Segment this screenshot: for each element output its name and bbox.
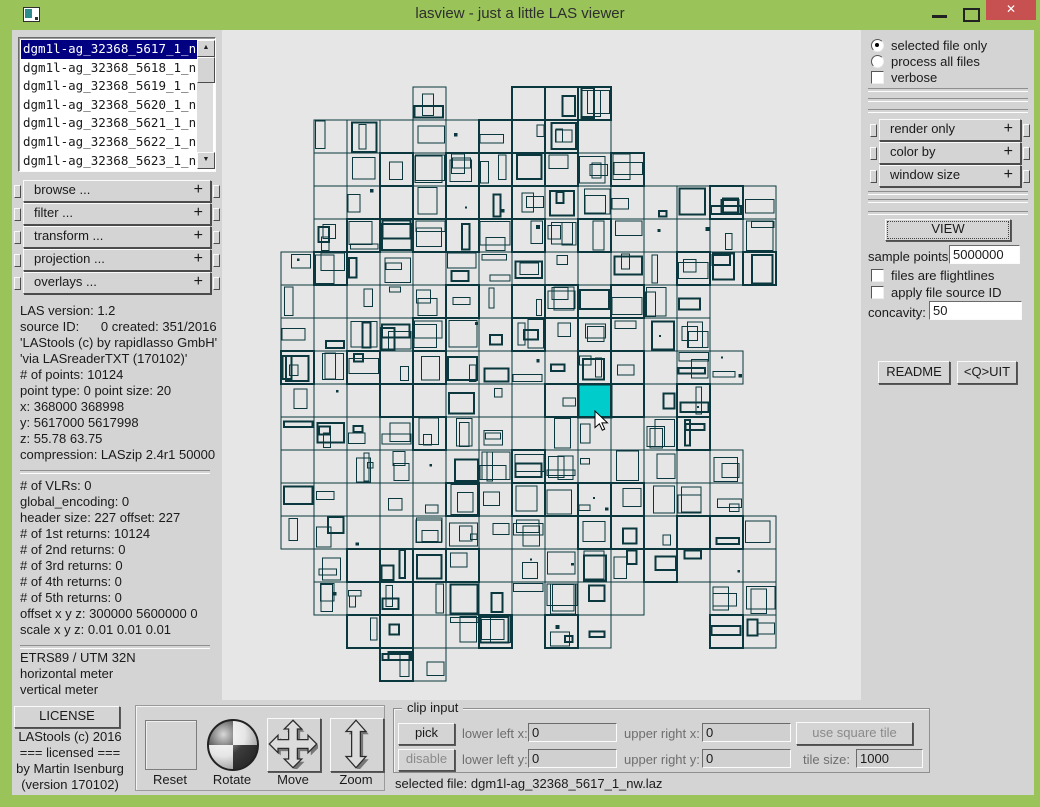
tile-inner-rect [348,433,365,443]
clip-input-legend: clip input [402,700,463,716]
map-tile [512,549,545,582]
tab-cap-left [14,208,21,221]
map-tile [314,384,347,417]
map-tile [611,483,644,516]
radio-selected-file-only[interactable]: selected file only [871,38,987,53]
map-tile [677,285,710,318]
map-tile [380,384,413,417]
tile-inner-rect [436,584,444,613]
maximize-button[interactable] [963,8,980,22]
tile-inner-rect [416,221,445,232]
checkbox-label: apply file source ID [891,285,1002,300]
pick-button[interactable]: pick [398,723,455,745]
tile-inner-rect [319,569,337,575]
tile-inner-rect [531,221,542,243]
tile-inner-rect [679,189,705,215]
tile-inner-rect [451,485,478,515]
tile-inner-rect [480,466,506,480]
tile-inner-rect [418,126,445,143]
tile-inner-rect [364,289,372,307]
map-tile [644,384,677,417]
map-tile [413,153,446,186]
menu-row: transform ...+ [14,226,220,248]
accordion-label: browse ... [24,182,90,197]
accordion-label: color by [880,144,936,159]
tile-inner-rect [558,456,573,479]
separator [20,470,210,474]
tab-cap-left [14,254,21,267]
tile-inner-rect [451,271,468,281]
tile-inner-rect [682,326,698,340]
reset-square-icon[interactable] [145,720,197,770]
tile-inner-rect [285,287,293,316]
map-tile [644,549,677,582]
minimize-button[interactable] [932,15,947,18]
credits: LAStools (c) 2016=== licensed ===by Mart… [12,729,128,793]
scroll-up-icon[interactable]: ▲ [197,40,215,57]
map-tile [479,516,512,549]
tile-inner-rect [713,594,737,606]
checkbox-verbose[interactable]: verbose [871,70,937,85]
tile-inner-rect [583,359,604,379]
map-tile [545,351,578,384]
map-tile [512,384,545,417]
tile-inner-rect [284,421,313,427]
tile-inner-rect [400,652,409,676]
tile-inner-rect [490,335,502,345]
tile-inner-rect [316,121,326,148]
tile-inner-rect [580,356,591,365]
view-tools-frame: Reset Rotate Move Zoom [135,705,385,791]
tile-dot [530,559,532,561]
tab-cap-right [1023,147,1030,160]
tile-inner-rect [548,456,564,477]
tile-dot [370,189,373,192]
tile-inner-rect [294,389,307,409]
map-tile [380,285,413,318]
separator [868,211,1028,215]
accordion-label: render only [880,121,955,136]
readme-button[interactable]: README [878,361,950,384]
map-tile [611,186,644,219]
map-tile [545,582,578,615]
tile-inner-rect [490,275,510,281]
map-tile [314,153,347,186]
tab-cap-right [213,208,220,221]
accordion-label: transform ... [24,228,103,243]
tile-inner-rect [485,369,509,382]
right-panel: selected file only process all files ver… [861,30,1034,700]
tile-inner-rect [415,155,444,180]
tile-map-canvas[interactable] [222,30,861,700]
view-button[interactable]: VIEW [885,219,1011,241]
tile-inner-rect [350,244,378,249]
tile-dot [697,406,699,408]
tile-dot [593,497,595,499]
map-tile [743,219,776,252]
option-color-by-button[interactable]: color by+ [879,142,1021,164]
map-tile [611,153,644,186]
tile-inner-rect [585,195,606,213]
tile-inner-rect [514,583,543,591]
tab-cap-left [14,185,21,198]
menu-filter-button[interactable]: filter ...+ [23,203,211,225]
crs-info: ETRS89 / UTM 32Nhorizontal metervertical… [20,650,218,698]
tile-dot [336,390,339,393]
map-tile [512,87,545,120]
lower-left-x-label: lower left x: [462,726,528,741]
separator [868,109,1028,113]
map-tile [413,648,446,681]
tab-cap-left [870,147,877,160]
disable-button[interactable]: disable [398,749,455,771]
tile-inner-rect [593,221,604,250]
las-header-line: 'LAStools (c) by rapidlasso GmbH' [20,335,218,351]
map-tile [512,351,545,384]
lower-left-x-input[interactable]: 0 [528,723,617,742]
tab-cap-left [14,277,21,290]
tile-size-label: tile size: [803,752,850,767]
scrollbar-thumb[interactable] [197,57,215,83]
map-tile [677,252,710,285]
tile-inner-rect [579,505,590,511]
separator [868,199,1028,203]
tile-inner-rect [562,222,576,245]
las-header-line: z: 55.78 63.75 [20,431,218,447]
map-tile [380,615,413,648]
tile-inner-rect [751,589,767,614]
tile-inner-rect [745,521,770,543]
map-tile [479,252,512,285]
left-panel: dgm1l-ag_32368_5617_1_ndgm1l-ag_32368_56… [12,30,222,700]
map-tile [545,516,578,549]
tile-dot [536,225,540,229]
menu-projection-button[interactable]: projection ...+ [23,249,211,271]
accordion-label: overlays ... [24,274,97,289]
map-tile [446,450,479,483]
tile-inner-rect [616,221,643,236]
upper-right-x-input[interactable]: 0 [702,723,791,742]
menu-browse-button[interactable]: browse ...+ [23,180,211,202]
file-list-scrollbar[interactable]: ▲ ▼ [197,40,213,169]
crs-line: ETRS89 / UTM 32N [20,650,218,666]
tile-inner-rect [449,393,474,413]
map-tile [314,549,347,582]
move-tool-label[interactable]: Move [267,772,319,787]
map-tile [743,186,776,219]
tile-inner-rect [494,388,502,396]
las-detail-line: # of 1st returns: 10124 [20,526,218,542]
tile-inner-rect [451,584,478,613]
tile-inner-rect [325,353,336,379]
quit-button[interactable]: <Q>UIT [957,361,1017,384]
checkbox-icon [871,286,884,299]
tile-inner-rect [627,551,637,564]
tile-inner-rect [352,158,375,179]
credit-line: LAStools (c) 2016 [12,729,128,745]
tile-inner-rect [289,519,298,541]
close-button[interactable]: ✕ [986,0,1036,20]
map-tile [545,252,578,285]
map-tile [545,417,578,450]
tile-dot [659,335,661,337]
tile-inner-rect [683,259,696,272]
map-tile [479,120,512,153]
menu-row: overlays ...+ [14,272,220,294]
map-tile [545,615,578,648]
map-tile [347,615,380,648]
tile-inner-rect [713,253,734,279]
tile-inner-rect [748,620,758,636]
map-tile [380,153,413,186]
map-tile [611,384,644,417]
file-list-item[interactable]: dgm1l-ag_32368_5620_1_n [21,96,197,115]
tile-inner-rect [680,403,708,412]
tile-inner-rect [555,130,571,142]
map-tile [611,285,644,318]
tile-inner-rect [713,371,735,377]
file-list-item[interactable]: dgm1l-ag_32368_5617_1_n [21,40,197,59]
file-list-item[interactable]: dgm1l-ag_32368_5622_1_n [21,133,197,152]
las-header-line: x: 368000 368998 [20,399,218,415]
map-tile [479,582,512,615]
sample-points-input[interactable]: 5000000 [949,245,1020,264]
tile-dot [454,133,458,137]
las-header-info: LAS version: 1.2source ID: 0 created: 35… [20,303,218,463]
map-tile [347,219,380,252]
map-tile [677,219,710,252]
map-tile [479,384,512,417]
upper-right-y-label: upper right y: [624,752,700,767]
upper-right-x-label: upper right x: [624,726,700,741]
tile-inner-rect [549,155,568,169]
tile-inner-rect [383,598,399,608]
map-tile [347,285,380,318]
tile-inner-rect [418,299,437,316]
tile-inner-rect [390,423,410,442]
tile-inner-rect [449,320,477,347]
tile-dot [738,374,741,377]
lower-left-y-label: lower left y: [462,752,528,767]
las-detail-line: # of VLRs: 0 [20,478,218,494]
tile-inner-rect [581,459,590,464]
tile-inner-rect [612,198,628,208]
tile-inner-rect [480,134,503,143]
concavity-input[interactable]: 50 [929,301,1022,320]
tile-inner-rect [588,326,604,341]
las-detail-info: # of VLRs: 0global_encoding: 0header siz… [20,478,218,638]
file-list-item[interactable]: dgm1l-ag_32368_5621_1_n [21,114,197,133]
tile-inner-rect [615,321,636,328]
map-tile [380,186,413,219]
tile-inner-rect [451,618,478,623]
tile-inner-rect [382,224,412,250]
file-list-item[interactable]: dgm1l-ag_32368_5618_1_n [21,59,197,78]
map-tile [314,252,347,285]
map-tile [578,219,611,252]
tile-inner-rect [587,90,609,113]
map-tile [479,285,512,318]
tile-inner-rect [415,156,442,183]
tile-inner-rect [751,221,774,227]
tile-inner-rect [494,194,501,216]
tile-inner-rect [563,398,575,406]
tile-inner-rect [417,555,442,579]
tile-inner-rect [386,263,402,270]
license-button[interactable]: LICENSE [14,706,120,728]
map-tile [611,351,644,384]
accordion-label: window size [880,167,960,182]
tile-inner-rect [316,255,335,284]
tile-inner-rect [752,255,772,283]
radio-label: selected file only [891,38,987,53]
file-list-item[interactable]: dgm1l-ag_32368_5619_1_n [21,77,197,96]
tile-inner-rect [557,255,568,264]
map-tile [743,549,776,582]
tile-inner-rect [394,463,409,480]
tile-inner-rect [462,224,470,249]
tile-inner-rect [557,192,564,203]
map-tile [347,582,380,615]
tile-inner-rect [686,424,705,430]
map-tile [644,318,677,351]
tile-inner-rect [522,562,537,578]
file-list-item[interactable]: dgm1l-ag_32368_5623_1_n [21,152,197,169]
tile-inner-rect [371,618,377,640]
tile-inner-rect [547,584,577,606]
map-tile [644,351,677,384]
tile-inner-rect [388,499,401,511]
tile-inner-rect [623,529,636,544]
rotate-tool-label[interactable]: Rotate [196,772,268,787]
zoom-tool-label[interactable]: Zoom [330,772,382,787]
tile-dot [657,229,660,232]
tile-inner-rect [583,521,605,541]
map-tile [545,153,578,186]
map-tile [677,516,710,549]
accordion-label: filter ... [24,205,73,220]
radio-process-all-files[interactable]: process all files [871,54,980,69]
move-tool-button[interactable] [267,718,321,772]
tile-dot [333,592,336,595]
expand-plus-icon: + [1004,120,1013,138]
tile-inner-rect [382,434,411,444]
las-detail-line: scale x y z: 0.01 0.01 0.01 [20,622,218,638]
map-tile [446,516,479,549]
file-listbox[interactable]: dgm1l-ag_32368_5617_1_ndgm1l-ag_32368_56… [18,37,216,172]
tile-inner-rect [612,298,642,315]
tile-inner-rect [528,320,544,348]
las-detail-line: # of 3rd returns: 0 [20,558,218,574]
tile-inner-rect [318,227,329,242]
tile-inner-rect [422,531,438,542]
upper-right-y-input[interactable]: 0 [702,749,791,768]
rotate-trackball-icon[interactable] [207,719,259,771]
map-tile [446,186,479,219]
map-tile [578,450,611,483]
checkbox-files-are-flightlines[interactable]: files are flightlines [871,268,994,283]
use-square-tile-button[interactable]: use square tile [796,722,913,745]
map-tile [347,252,380,285]
tile-inner-rect [282,328,305,340]
map-tile [578,582,611,615]
tile-inner-rect [487,452,493,481]
reset-tool-label[interactable]: Reset [136,772,204,787]
tile-dot [429,464,431,466]
tile-inner-rect [460,616,477,642]
file-list: dgm1l-ag_32368_5617_1_ndgm1l-ag_32368_56… [21,40,197,169]
menu-row: filter ...+ [14,203,220,225]
tile-inner-rect [616,451,638,480]
map-tile [677,417,710,450]
tab-cap-right [213,231,220,244]
tile-inner-rect [652,322,674,350]
menu-transform-button[interactable]: transform ...+ [23,226,211,248]
tile-inner-rect [696,387,702,414]
tile-inner-rect [316,491,334,499]
map-tile [710,549,743,582]
tile-inner-rect [614,162,643,174]
map-tile [281,285,314,318]
lower-left-y-input[interactable]: 0 [528,749,617,768]
map-tile [644,252,677,285]
tile-inner-rect [747,221,774,250]
window-title: lasview - just a little LAS viewer [0,0,1040,30]
map-tile [413,450,446,483]
tile-inner-rect [722,464,739,478]
tile-inner-rect [526,197,543,208]
tile-size-input[interactable]: 1000 [856,749,923,768]
tile-inner-rect [321,253,344,270]
tile-inner-rect [725,233,732,249]
radio-on-icon [871,39,884,52]
tile-inner-rect [685,550,702,558]
tile-inner-rect [292,254,311,267]
app-window-icon[interactable] [23,7,40,22]
scroll-down-icon[interactable]: ▼ [197,152,215,169]
map-tile [281,252,314,285]
tile-inner-rect [417,290,431,303]
menu-overlays-button[interactable]: overlays ...+ [23,272,211,294]
expand-plus-icon: + [194,273,203,291]
map-tile [314,450,347,483]
option-window-size-button[interactable]: window size+ [879,165,1021,187]
tile-inner-rect [322,354,343,380]
tile-inner-rect [351,322,377,347]
option-render-only-button[interactable]: render only+ [879,119,1021,141]
map-tile [644,483,677,516]
tile-inner-rect [486,237,505,250]
map-tile [512,417,545,450]
tile-inner-rect [663,535,670,545]
tile-inner-rect [447,253,476,268]
map-tile [347,516,380,549]
tile-inner-rect [556,129,563,142]
map-tile [545,483,578,516]
option-row: render only+ [870,119,1030,141]
tile-inner-rect [614,557,627,579]
zoom-tool-button[interactable] [330,718,384,772]
tile-dot [605,507,608,510]
expand-plus-icon: + [1004,166,1013,184]
tile-inner-rect [617,365,634,375]
checkbox-icon [871,71,884,84]
map-tile [545,384,578,417]
checkbox-apply-file-source-id[interactable]: apply file source ID [871,285,1002,300]
tile-inner-rect [453,298,470,305]
tile-inner-rect [758,623,774,634]
tile-inner-rect [363,323,371,348]
